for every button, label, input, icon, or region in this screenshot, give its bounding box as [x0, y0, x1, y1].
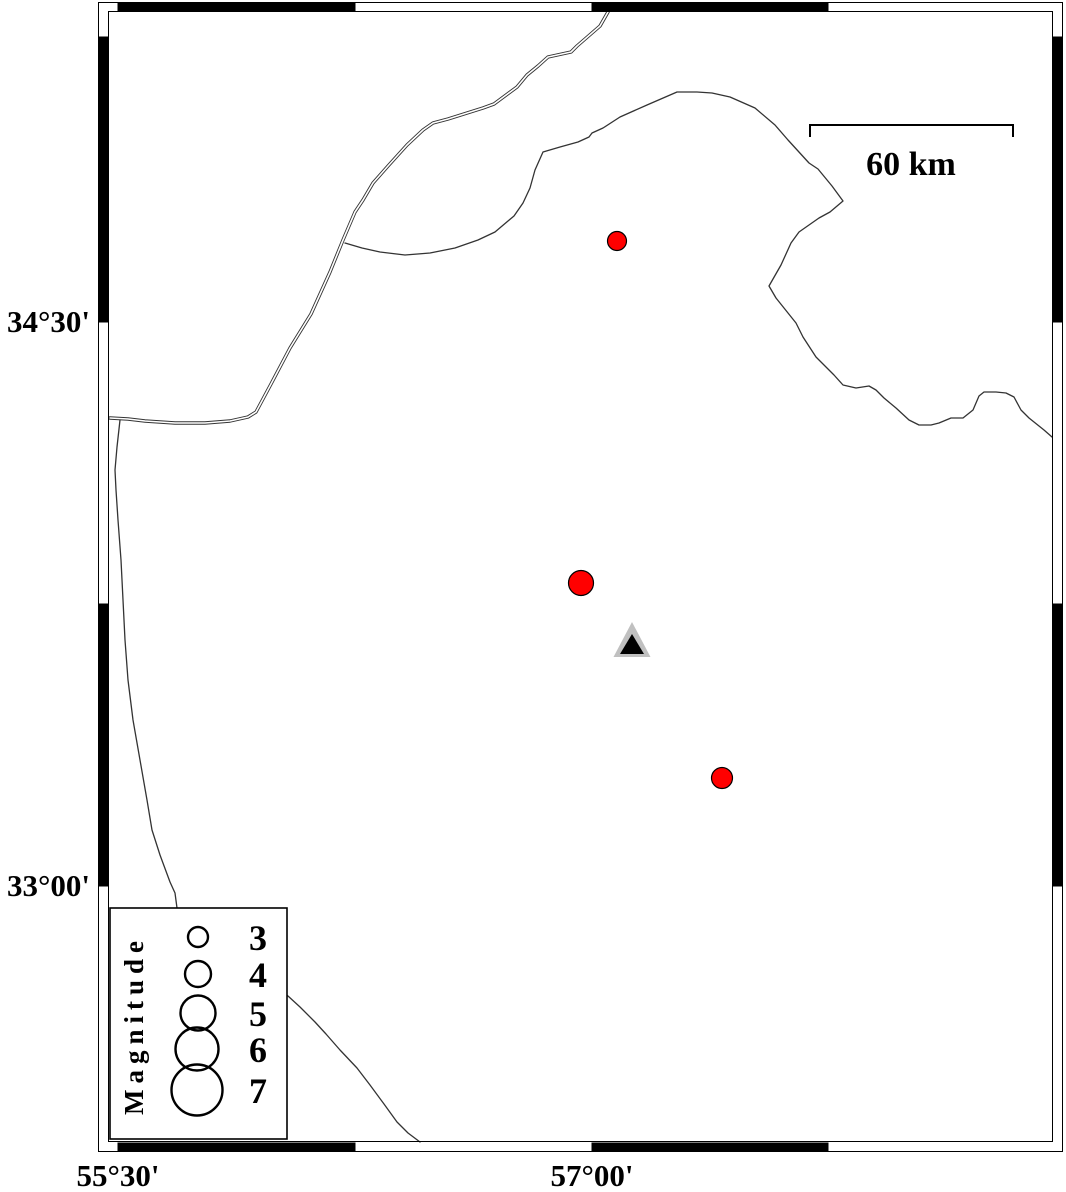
scale-bar: 60 km: [810, 125, 1013, 183]
earthquake-marker-2: [569, 571, 594, 596]
frame-segment-right-1: [1053, 37, 1063, 322]
legend-title: Magnitude: [119, 935, 149, 1115]
longitude-label-57-00: 57°00': [550, 1158, 633, 1192]
boundary-line-main-outer: [110, 12, 608, 423]
boundary-line-northeast: [345, 92, 1052, 437]
legend-label-m7: 7: [249, 1071, 267, 1111]
boundary-line-main-core: [110, 12, 608, 423]
map-canvas: Magnitude 3 4 5 6 7: [0, 0, 1066, 1192]
scale-bar-label: 60 km: [866, 146, 956, 183]
legend-label-m4: 4: [249, 955, 267, 995]
frame-segment-left-2: [99, 604, 109, 886]
frame-segment-bottom-2: [592, 1143, 828, 1152]
legend-label-m5: 5: [249, 994, 267, 1034]
scale-bar-line: [810, 125, 1013, 137]
legend: Magnitude 3 4 5 6 7: [110, 908, 287, 1139]
frame-segment-left-1: [99, 37, 109, 322]
frame-segment-bottom-1: [118, 1143, 355, 1152]
legend-label-m3: 3: [249, 918, 267, 958]
longitude-label-55-30: 55°30': [76, 1158, 159, 1192]
earthquake-marker-1: [608, 232, 627, 251]
latitude-label-33-00: 33°00': [7, 868, 90, 903]
earthquake-marker-3: [712, 768, 733, 789]
earthquake-markers: [569, 232, 733, 789]
frame-segment-top-2: [592, 3, 828, 12]
station-marker: [614, 622, 651, 657]
frame-segment-top-1: [118, 3, 355, 12]
latitude-label-34-30: 34°30': [7, 304, 90, 339]
legend-label-m6: 6: [249, 1030, 267, 1070]
frame-segment-right-2: [1053, 604, 1063, 886]
